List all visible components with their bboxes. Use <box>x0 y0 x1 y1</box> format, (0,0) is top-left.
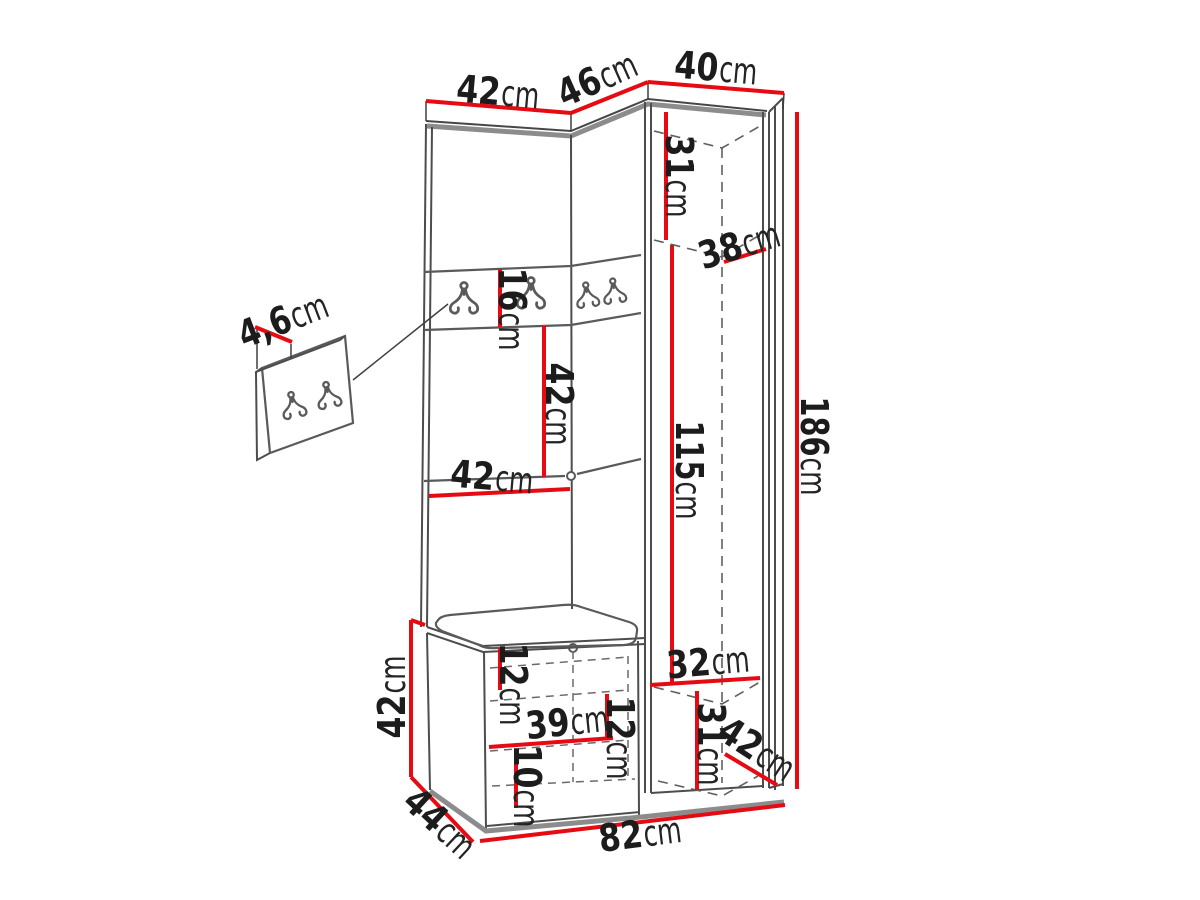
dimension-labels: 42cm 46cm 40cm 31cm 38cm 16cm 42cm 42cm … <box>232 42 836 867</box>
dim-label-bench-height: 42cm <box>370 656 414 739</box>
callout-pointer-line <box>353 304 448 380</box>
connector-joint <box>567 472 575 480</box>
dim-label-total-width: 82cm <box>596 807 684 861</box>
dim-label-mid-section-height: 42cm <box>537 363 581 446</box>
dim-label-lower-inner-width: 32cm <box>665 636 752 687</box>
double-hook-icon <box>575 281 600 308</box>
dim-label-bench-shelf-width: 39cm <box>523 696 610 748</box>
coat-hooks <box>450 277 626 313</box>
furniture-dimension-diagram: 42cm 46cm 40cm 31cm 38cm 16cm 42cm 42cm … <box>0 0 1200 900</box>
dim-label-wardrobe-inner-height: 115cm <box>667 421 711 520</box>
dim-label-upper-cabinet-inner-height: 31cm <box>657 135 701 218</box>
dim-label-bench-mid-clearance: 12cm <box>598 697 642 780</box>
dim-label-total-height: 186cm <box>792 397 836 496</box>
dim-label-top-right-width: 40cm <box>673 42 760 93</box>
dim-label-mid-section-width: 42cm <box>449 451 536 502</box>
double-hook-icon <box>602 277 627 304</box>
seat-cushion <box>436 605 637 648</box>
dim-label-bench-bottom-clearance: 10cm <box>505 745 549 828</box>
dim-line-bench-height-tick <box>411 620 425 625</box>
dim-label-upper-shelf-depth: 38cm <box>693 212 785 278</box>
double-hook-icon <box>279 390 307 420</box>
double-hook-icon <box>314 380 342 410</box>
dim-label-top-angled-width: 46cm <box>550 42 644 116</box>
dim-label-hook-rail-height: 16cm <box>490 268 534 351</box>
left-hook-panel <box>421 124 641 652</box>
dim-label-top-left-width: 42cm <box>455 66 542 117</box>
double-hook-icon <box>450 283 477 314</box>
